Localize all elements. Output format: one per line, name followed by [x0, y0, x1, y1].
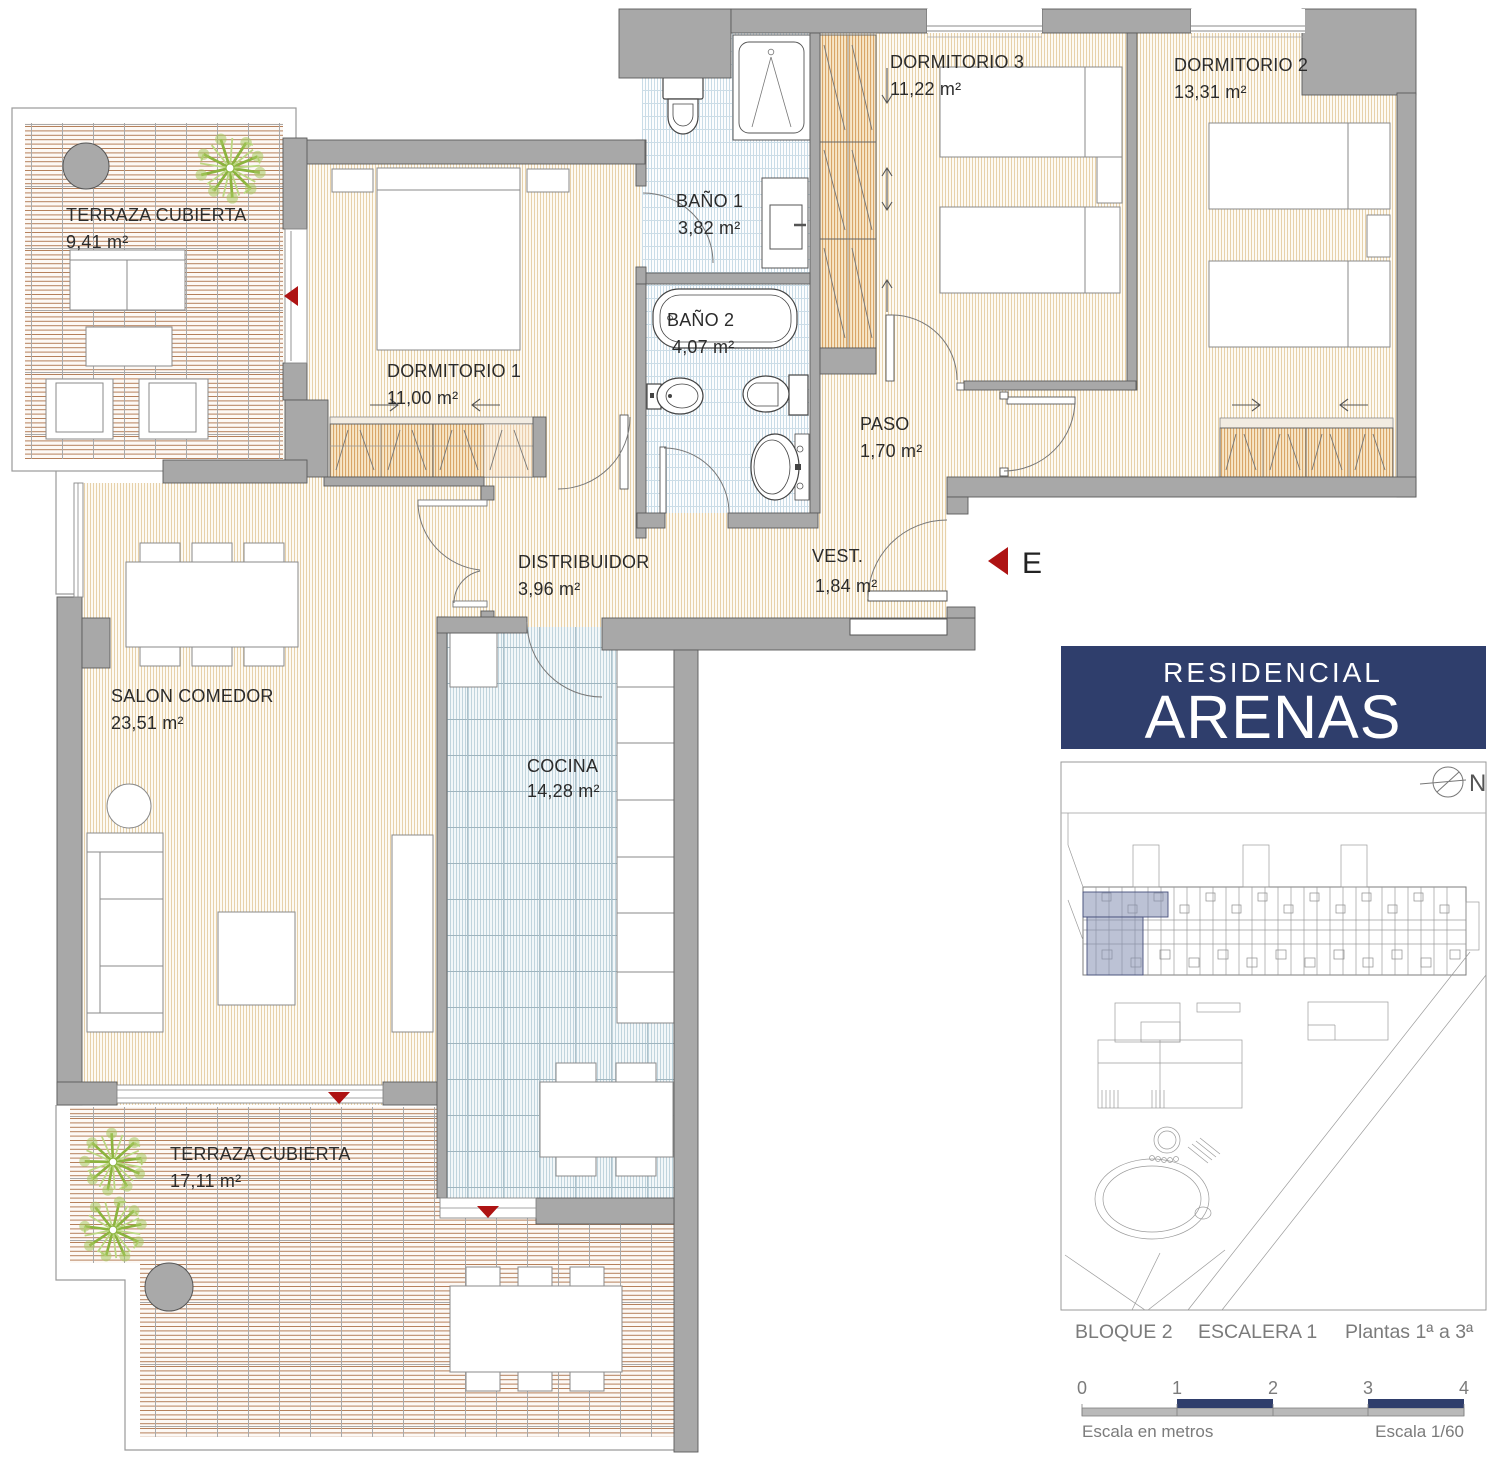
- svg-text:TERRAZA CUBIERTA: TERRAZA CUBIERTA: [66, 205, 247, 225]
- svg-text:SALON COMEDOR: SALON COMEDOR: [111, 686, 274, 706]
- svg-text:DORMITORIO 2: DORMITORIO 2: [1174, 55, 1308, 75]
- svg-text:3: 3: [1363, 1378, 1373, 1398]
- svg-text:Escala en metros: Escala en metros: [1082, 1422, 1213, 1441]
- svg-text:0: 0: [1077, 1378, 1087, 1398]
- svg-text:2: 2: [1268, 1378, 1278, 1398]
- svg-text:N: N: [1469, 770, 1486, 797]
- svg-text:ARENAS: ARENAS: [1145, 683, 1402, 751]
- svg-text:BLOQUE 2: BLOQUE 2: [1075, 1321, 1173, 1343]
- svg-text:14,28 m²: 14,28 m²: [527, 781, 600, 801]
- svg-text:DORMITORIO 1: DORMITORIO 1: [387, 361, 521, 381]
- svg-text:23,51 m²: 23,51 m²: [111, 713, 184, 733]
- svg-text:Plantas 1ª a 3ª: Plantas 1ª a 3ª: [1345, 1321, 1474, 1343]
- svg-text:17,11 m²: 17,11 m²: [170, 1171, 241, 1191]
- svg-text:DORMITORIO 3: DORMITORIO 3: [890, 52, 1024, 72]
- svg-text:TERRAZA CUBIERTA: TERRAZA CUBIERTA: [170, 1144, 351, 1164]
- svg-text:9,41 m²: 9,41 m²: [66, 232, 128, 252]
- svg-text:DISTRIBUIDOR: DISTRIBUIDOR: [518, 552, 649, 572]
- svg-text:COCINA: COCINA: [527, 756, 598, 776]
- svg-text:BAÑO 2: BAÑO 2: [667, 309, 734, 330]
- svg-text:11,00 m²: 11,00 m²: [387, 388, 458, 408]
- svg-text:VEST.: VEST.: [812, 546, 863, 566]
- svg-text:BAÑO 1: BAÑO 1: [676, 190, 743, 211]
- svg-text:4: 4: [1459, 1378, 1469, 1398]
- svg-text:11,22 m²: 11,22 m²: [890, 79, 961, 99]
- svg-text:Escala 1/60: Escala 1/60: [1375, 1422, 1464, 1441]
- svg-text:1: 1: [1172, 1378, 1182, 1398]
- svg-text:ESCALERA 1: ESCALERA 1: [1198, 1321, 1317, 1343]
- svg-text:4,07 m²: 4,07 m²: [672, 337, 734, 357]
- svg-text:3,82 m²: 3,82 m²: [678, 218, 740, 238]
- svg-text:E: E: [1022, 547, 1042, 580]
- svg-text:3,96 m²: 3,96 m²: [518, 579, 580, 599]
- svg-text:1,70 m²: 1,70 m²: [860, 441, 922, 461]
- svg-text:PASO: PASO: [860, 414, 909, 434]
- svg-text:1,84 m²: 1,84 m²: [815, 576, 877, 596]
- svg-text:13,31 m²: 13,31 m²: [1174, 82, 1247, 102]
